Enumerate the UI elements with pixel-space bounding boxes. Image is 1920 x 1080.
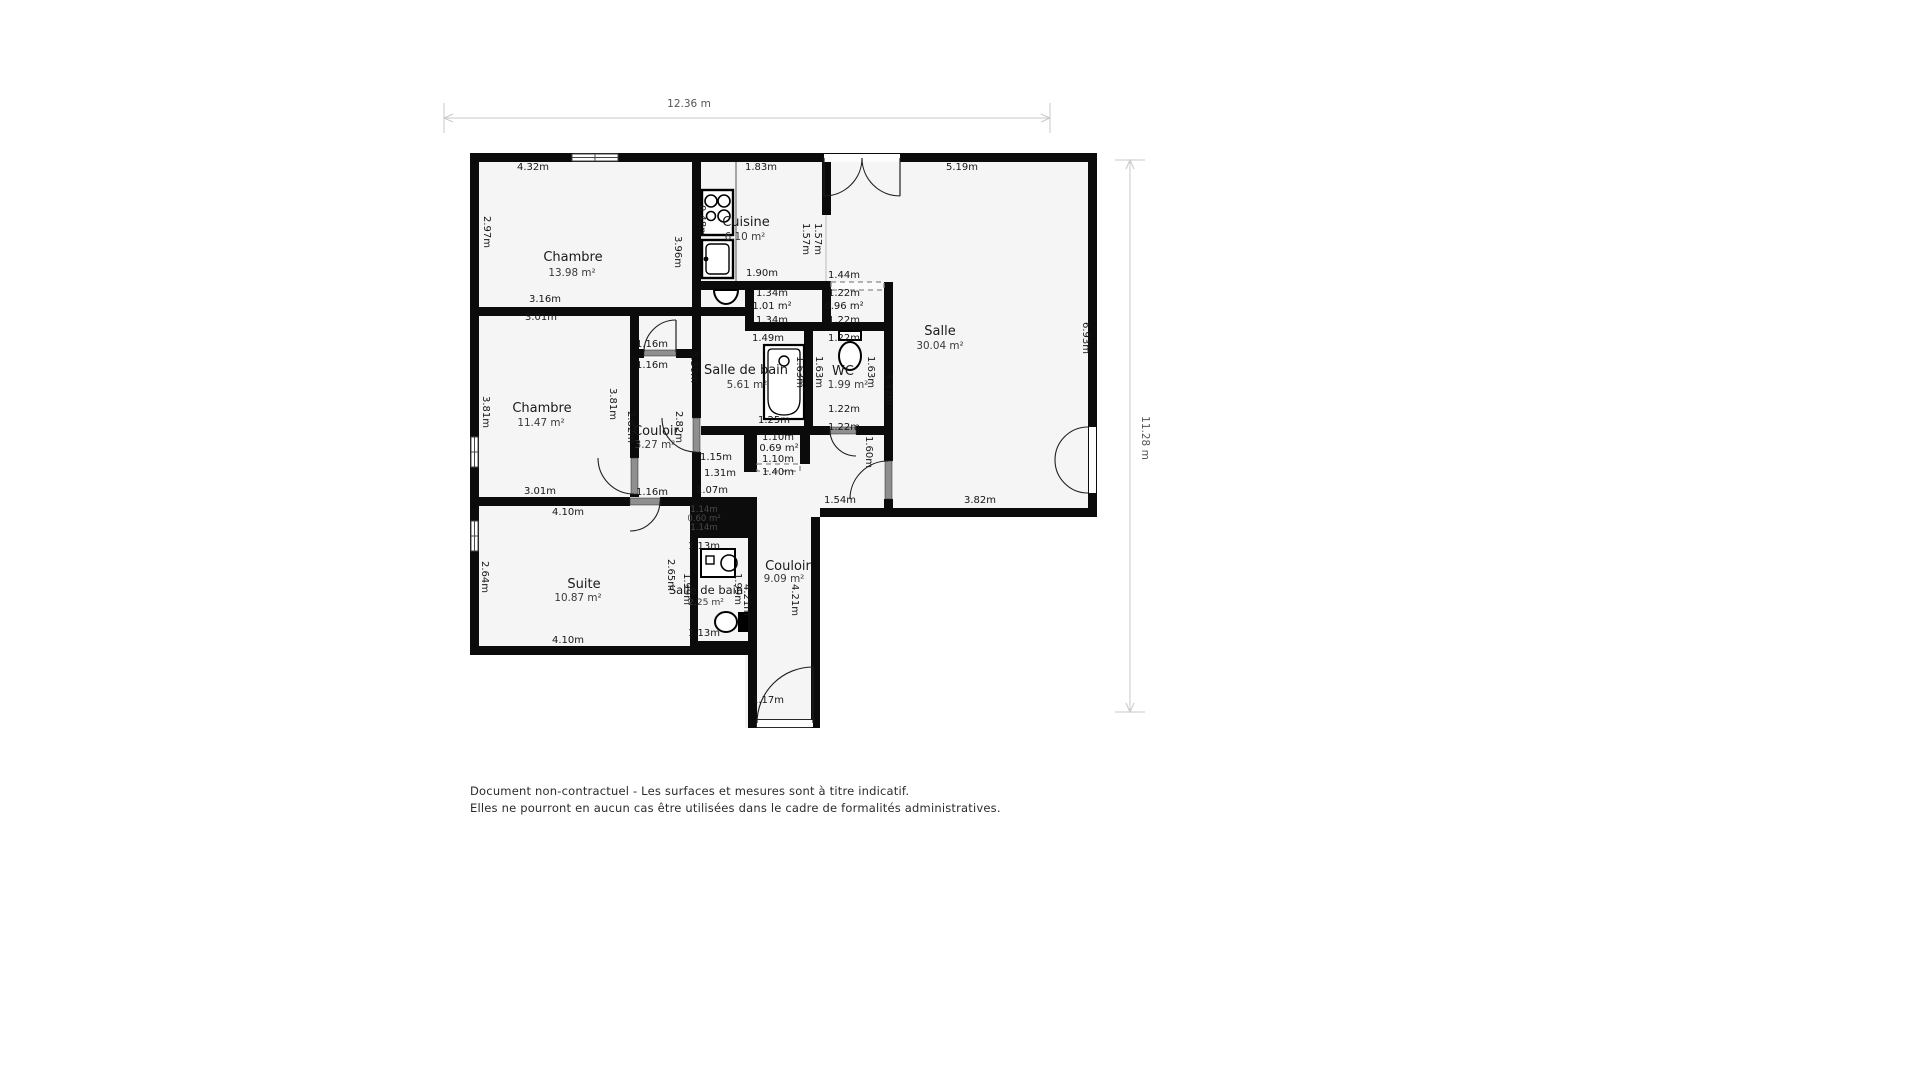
room-area-label: 2.25 m² [688,597,724,608]
room-label: Chambre [543,250,602,265]
wall [470,497,630,506]
measurement-label: 1.34m [756,288,788,299]
wall [639,349,644,358]
measurement-label: 4.42m [883,373,894,405]
door-slab [693,418,700,452]
wall [748,646,757,719]
door-slab [630,498,660,505]
wall [800,435,810,464]
room-area-label: 6.10 m² [725,231,766,243]
measurement-label: 1.63m [794,356,805,388]
room-area-label: 1.99 m² [828,379,869,391]
measurement-label: 4.21m [789,584,800,616]
floorplan-svg: 1.14m0.60 m²1.14mChambre13.98 m²Cuisine6… [0,0,1920,1080]
room-label: Cuisine [722,215,770,230]
door-slab [644,350,676,356]
disclaimer-line-1: Document non-contractuel - Les surfaces … [470,783,1001,800]
measurement-label: 3.82m [964,495,996,506]
room-area-label: 10.87 m² [554,592,601,604]
room-label: Suite [567,577,600,592]
measurement-label: 1.40m [762,467,794,478]
measurement-label: 1.22m [828,404,860,415]
measurement-label: 0.48m [696,205,707,237]
measurement-label: 1.22m [828,288,860,299]
room-area-label: 13.98 m² [548,267,595,279]
kitchen-sink-basin [706,244,729,274]
wall [470,153,1097,162]
wall [884,435,893,461]
floorplan-page: 1.14m0.60 m²1.14mChambre13.98 m²Cuisine6… [0,0,1920,1080]
measurement-label: 6.93m [1080,322,1091,354]
room-label: Salle de bain [704,363,788,378]
measurement-label: 0.96 m² [824,301,863,312]
door-slab [885,461,892,499]
room-label: Couloir [765,559,811,574]
measurement-label: 1.22m [828,333,860,344]
room-area-label: 11.47 m² [517,417,564,429]
measurement-label: 4.21m [741,584,752,616]
measurement-label: 1.60m [863,436,874,468]
wall [820,508,1097,517]
measurement-label: 1.99m [681,573,692,605]
wall [822,162,831,215]
wall [856,426,893,435]
room-label: WC [832,364,854,379]
wall [884,282,893,435]
room-area-label: 5.61 m² [727,379,768,391]
wall [701,307,745,316]
dim-label-height: 11.28 m [1139,416,1151,460]
wall [744,435,757,472]
measurement-label: 5.19m [946,162,978,173]
wall [690,641,757,650]
measurement-label: 1.10m [762,454,794,465]
measurement-label: 3.81m [607,388,618,420]
measurement-label: 1.16m [636,487,668,498]
kitchen-sink-faucet [704,257,709,262]
measurement-label: 1.13m [688,628,720,639]
measurement-label: 1.07m [696,485,728,496]
measurement-label: 1.57m [812,223,823,255]
room-label: Couloir [633,424,679,439]
room-label: Salle [924,324,955,339]
measurement-label: 3.81m [480,396,491,428]
measurement-label: 4.10m [552,507,584,518]
measurement-label: 1.63m [865,356,876,388]
wall [470,307,701,316]
measurement-label: 2.64m [479,561,490,593]
measurement-label: 3.96m [672,236,683,268]
wall [701,426,813,435]
measurement-label: 1.17m [752,695,784,706]
measurement-label: 2.82m [625,411,636,443]
measurement-label: 2.97m [481,216,492,248]
wall [884,499,893,508]
measurement-label: 1.16m [636,360,668,371]
measurement-label: 2.65m [665,559,676,591]
measurement-label: 4.10m [552,635,584,646]
door-opening [1089,427,1096,493]
measurement-label: 1.83m [745,162,777,173]
measurement-label: 1.13m [688,541,720,552]
measurement-label: 1.90m [746,268,778,279]
measurement-label: 1.31m [704,468,736,479]
measurement-label: 1.49m [752,333,784,344]
measurement-label: 1.57m [800,223,811,255]
disclaimer-line-2: Elles ne pourront en aucun cas être util… [470,800,1001,817]
measurement-label: 0.69 m² [759,443,798,454]
dim-label-width: 12.36 m [667,98,711,110]
room-area-label: 30.04 m² [916,340,963,352]
room-label: Chambre [512,401,571,416]
disclaimer: Document non-contractuel - Les surfaces … [470,783,1001,816]
measurement-label: 1.22m [828,422,860,433]
wall [470,162,479,655]
measurement-label: 1.25m [758,415,790,426]
measurement-label: 1.22m [828,315,860,326]
measurement-label: 1.10m [762,432,794,443]
room-area-label: 3.27 m² [635,439,676,451]
door-opening [757,720,813,727]
measurement-label: 1.63m [813,356,824,388]
measurement-label: 2.82m [673,411,684,443]
measurement-label: 1.15m [700,452,732,463]
measurement-label: 3.01m [524,486,556,497]
measurement-label: 1.16m [636,339,668,350]
wall [811,517,820,719]
measurement-label: 4.32m [517,162,549,173]
measurement-label: 1.01 m² [752,301,791,312]
measurement-label: 1.44m [828,270,860,281]
measurement-label: 1.54m [824,495,856,506]
measurement-label: 3.16m [529,294,561,305]
measurement-label: 1.34m [756,315,788,326]
measurement-label: 3.30m [688,351,699,383]
measurement-label: 3.01m [525,312,557,323]
shaft-measurement: 1.14m [690,523,717,533]
